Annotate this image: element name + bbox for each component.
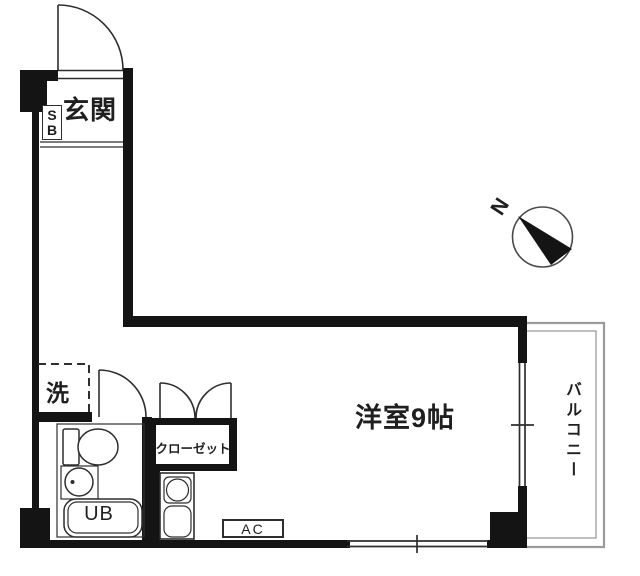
- balcony-label: バルコニー: [559, 381, 583, 526]
- air-conditioner-label: AC: [241, 521, 264, 537]
- wall-corridor-right: [123, 68, 133, 327]
- sink-basin-icon: [65, 468, 93, 496]
- entrance-door-arc: [58, 5, 123, 70]
- western-room-label: 洋室9帖: [326, 396, 484, 435]
- kitchen-burner-icon: [167, 479, 189, 501]
- wall-room-top: [123, 316, 527, 327]
- kitchen-unit: [160, 473, 194, 539]
- closet-label: クローゼット: [152, 438, 234, 457]
- entrance-label: 玄関: [63, 90, 117, 127]
- wall-bottom-right-block: [490, 512, 527, 548]
- shoe-box-letter-b: B: [47, 123, 57, 138]
- wall-bottom: [20, 540, 350, 548]
- kitchen-sink-icon: [164, 506, 191, 537]
- sink-drain-icon: [71, 480, 75, 484]
- air-conditioner-box: AC: [222, 519, 284, 538]
- wall-kitchen-partition: [152, 471, 160, 548]
- kitchen-burner-cell: [164, 477, 191, 503]
- wall-top-sliver: [45, 70, 58, 81]
- bathroom-door: [99, 370, 146, 417]
- wall-laundry-bath: [32, 412, 92, 422]
- bathroom-door-arc: [99, 370, 146, 417]
- closet-door-right-arc: [196, 383, 231, 418]
- compass: [513, 207, 573, 267]
- walls: [20, 68, 527, 548]
- toilet-bowl-icon: [78, 429, 118, 465]
- unit-bath-label: UB: [80, 503, 118, 526]
- wall-left: [32, 103, 39, 513]
- floorplan-drawing: [0, 0, 640, 576]
- closet-doors: [160, 383, 231, 418]
- shoe-box: S B: [42, 105, 62, 140]
- toilet-tank-icon: [63, 429, 79, 465]
- floor-plan: 玄関 S B 洗 クローゼット UB AC 洋室9帖 バルコニー N: [0, 0, 640, 576]
- shoe-box-letter-s: S: [47, 108, 56, 123]
- wall-closet-top: [148, 418, 237, 425]
- closet-door-left-arc: [160, 383, 195, 418]
- laundry-label: 洗: [46, 374, 69, 408]
- wall-right-upper: [518, 327, 527, 363]
- wall-closet-bottom: [148, 464, 237, 471]
- wall-right-lower: [518, 486, 527, 516]
